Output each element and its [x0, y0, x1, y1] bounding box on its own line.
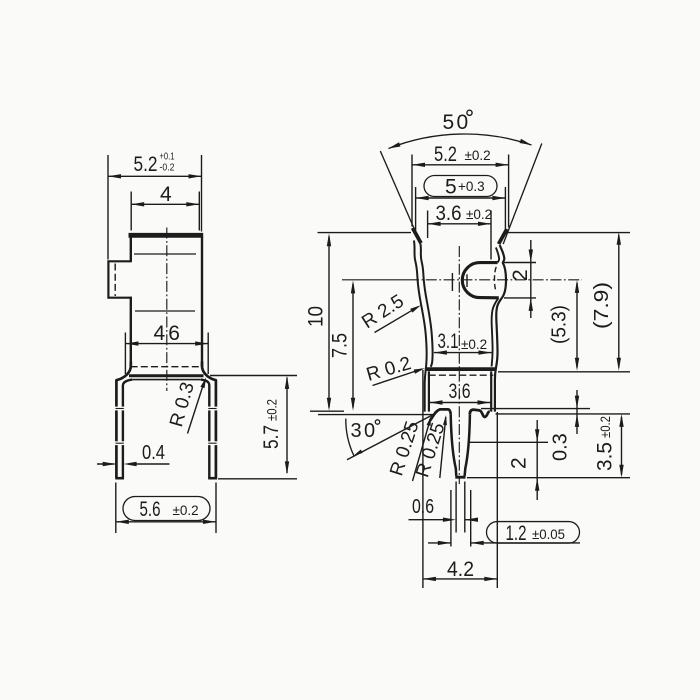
- svg-text:3.1: 3.1: [438, 330, 459, 353]
- svg-text:0.3: 0.3: [550, 433, 572, 461]
- svg-text:10: 10: [305, 306, 328, 327]
- svg-text:(5.3): (5.3): [549, 305, 571, 344]
- svg-text:(7.9): (7.9): [591, 282, 613, 329]
- svg-text:4: 4: [154, 322, 166, 345]
- svg-text:1.2: 1.2: [506, 522, 527, 545]
- svg-text:0: 0: [457, 111, 469, 134]
- svg-text:4: 4: [160, 183, 172, 206]
- svg-text:3.6: 3.6: [436, 202, 462, 225]
- svg-text:5.2: 5.2: [434, 143, 457, 166]
- svg-text:3: 3: [351, 420, 362, 442]
- svg-text:7.5: 7.5: [329, 333, 352, 358]
- svg-text:5.7: 5.7: [260, 425, 283, 449]
- svg-text:5: 5: [445, 176, 457, 199]
- svg-text:4.2: 4.2: [447, 558, 474, 581]
- svg-text:±0.05: ±0.05: [532, 527, 565, 542]
- svg-text:3.5: 3.5: [594, 442, 617, 471]
- svg-text:0.4: 0.4: [142, 442, 165, 464]
- svg-text:3.6: 3.6: [449, 380, 471, 403]
- svg-text:±0.2: ±0.2: [466, 207, 492, 222]
- svg-text:±0.2: ±0.2: [265, 399, 280, 421]
- svg-text:2: 2: [509, 269, 532, 281]
- svg-text:2: 2: [508, 457, 531, 469]
- svg-text:±0.2: ±0.2: [465, 148, 491, 163]
- svg-text:-0.2: -0.2: [160, 162, 175, 174]
- svg-text:±0.2: ±0.2: [461, 337, 487, 352]
- svg-text:±0.2: ±0.2: [598, 416, 613, 438]
- svg-text:6: 6: [168, 322, 180, 345]
- svg-text:+0.3: +0.3: [458, 179, 485, 194]
- svg-text:5.2: 5.2: [134, 153, 158, 176]
- svg-text:0: 0: [364, 420, 375, 442]
- svg-text:5.6: 5.6: [140, 498, 161, 521]
- svg-text:5: 5: [443, 111, 455, 134]
- svg-text:±0.2: ±0.2: [173, 503, 199, 518]
